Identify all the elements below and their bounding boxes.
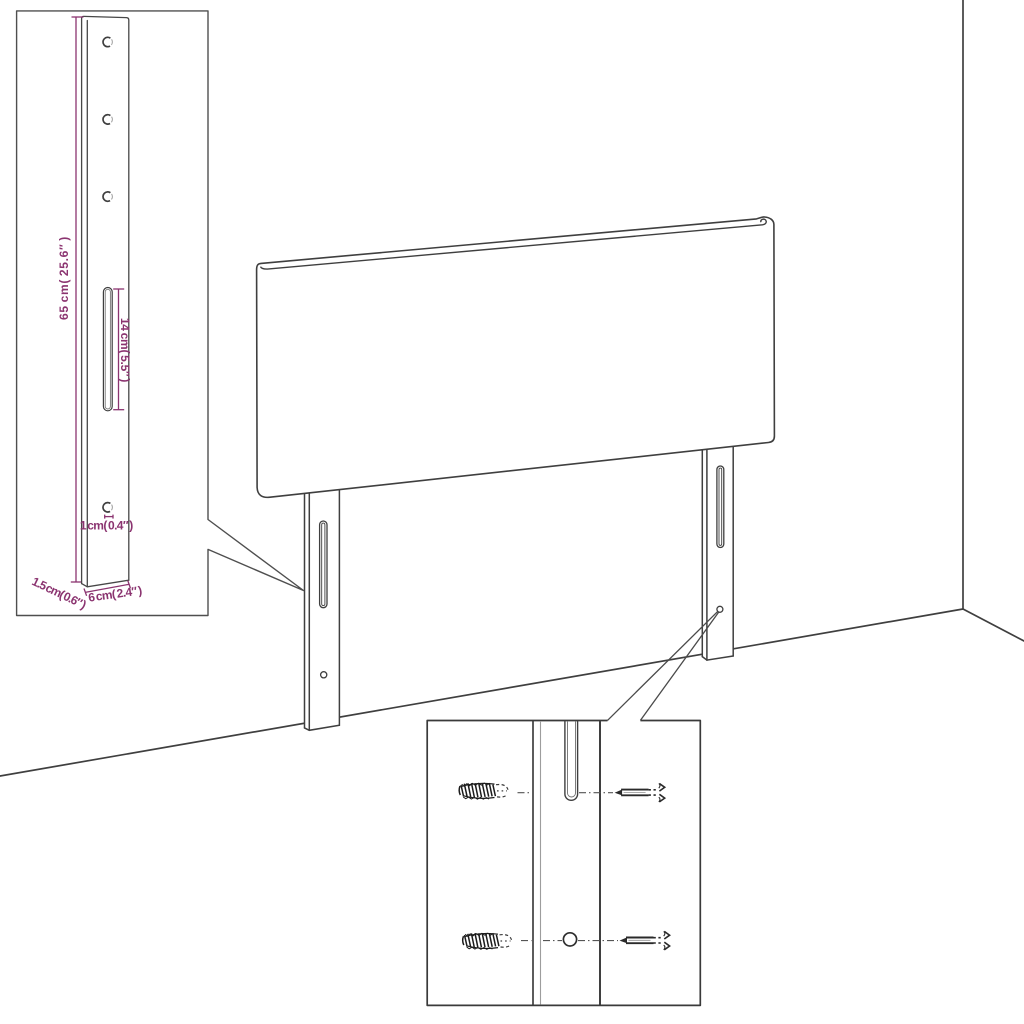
svg-text:14 cm( 5.5″ ): 14 cm( 5.5″ ) bbox=[118, 318, 132, 383]
svg-text:65 cm( 25.6″ ): 65 cm( 25.6″ ) bbox=[57, 236, 71, 320]
svg-text:1 cm( 0.4″ ): 1 cm( 0.4″ ) bbox=[80, 518, 133, 532]
